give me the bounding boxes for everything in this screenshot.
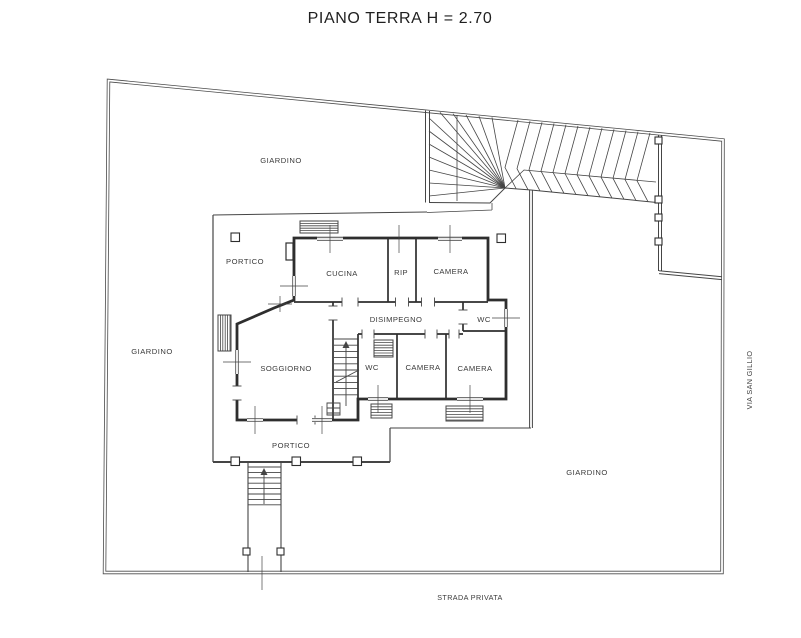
label-camera-right: CAMERA (458, 364, 493, 373)
ramp-chevron-line (505, 120, 518, 189)
hatch-rect (371, 404, 392, 418)
ramp-chevron-line (601, 129, 614, 198)
ramp-fan-line (440, 112, 505, 188)
label-portico-bottom: PORTICO (272, 441, 310, 450)
label-garden-left: GIARDINO (131, 347, 173, 356)
internal-stair (327, 341, 359, 415)
ramp-chevron-line (577, 127, 590, 196)
label-strada-privata: STRADA PRIVATA (437, 593, 503, 602)
ramp-chevron-line (625, 132, 638, 201)
door-gap (234, 386, 240, 400)
gate-post (277, 548, 284, 555)
ramp-fan-line (429, 118, 505, 188)
label-portico-top: PORTICO (226, 257, 264, 266)
ramp-chevron-line (517, 121, 530, 190)
label-wc-top: WC (477, 315, 491, 324)
stair-arrow-up (343, 341, 350, 348)
label-camera-mid: CAMERA (406, 363, 441, 372)
ramp-fan-line (453, 114, 505, 188)
door-gap (396, 299, 409, 305)
label-wc-lower: WC (365, 363, 379, 372)
ramp-chevron-line (565, 126, 578, 195)
door-gap (449, 331, 459, 337)
hatch-rect (300, 221, 338, 233)
wall-pillar (655, 214, 662, 221)
entry-stair-walkway (248, 462, 281, 572)
walkway-arrow (261, 468, 268, 475)
ramp-fan-line (479, 116, 505, 188)
label-disimpegno: DISIMPEGNO (370, 315, 423, 324)
floor-plan-page: PIANO TERRA H = 2.70 GIARDINO GIARDINO G… (0, 0, 801, 638)
hatch-rect (218, 315, 231, 351)
portico-pillar (231, 457, 240, 466)
door-gap (422, 299, 435, 305)
house-exterior-walls (237, 238, 506, 420)
label-rip: RIP (394, 268, 408, 277)
portico-pillar (497, 234, 506, 243)
door-gap (362, 331, 374, 337)
label-via-san-gillio: VIA SAN GILLIO (745, 351, 754, 410)
plan-title: PIANO TERRA H = 2.70 (308, 10, 493, 27)
label-cucina: CUCINA (326, 269, 358, 278)
gate-post (243, 548, 250, 555)
wall-pillar (655, 137, 662, 144)
ramp-fan-line (429, 131, 505, 188)
portico-pillar (292, 457, 301, 466)
right-garden-wall (659, 135, 723, 280)
label-soggiorno: SOGGIORNO (260, 364, 311, 373)
house-interior-walls (294, 238, 506, 420)
ramp-chevron-line (541, 124, 554, 193)
ramp-chevron-line (613, 131, 626, 200)
ramp-chevron-line (529, 122, 542, 190)
plan-detail (218, 112, 662, 590)
door-gap (425, 331, 437, 337)
ramp-fan-line (429, 188, 505, 196)
ramp-chevron-line (553, 125, 566, 194)
door-gap (330, 306, 336, 320)
portico-pillar (353, 457, 362, 466)
label-garden-right: GIARDINO (566, 468, 608, 477)
entrance-pier (286, 243, 293, 260)
label-camera-top: CAMERA (434, 267, 469, 276)
door-gap (460, 310, 466, 324)
portico-pillar (231, 233, 240, 242)
ramp-chevron-line (589, 128, 602, 197)
floor-plan-drawing: PIANO TERRA H = 2.70 GIARDINO GIARDINO G… (0, 0, 801, 638)
ramp-chevron-line (637, 133, 650, 202)
property-boundary (105, 81, 724, 573)
wall-pillar (655, 196, 662, 203)
label-garden-top: GIARDINO (260, 156, 302, 165)
door-gap (342, 299, 358, 305)
wall-pillar (655, 238, 662, 245)
hatch-rect (446, 406, 483, 421)
